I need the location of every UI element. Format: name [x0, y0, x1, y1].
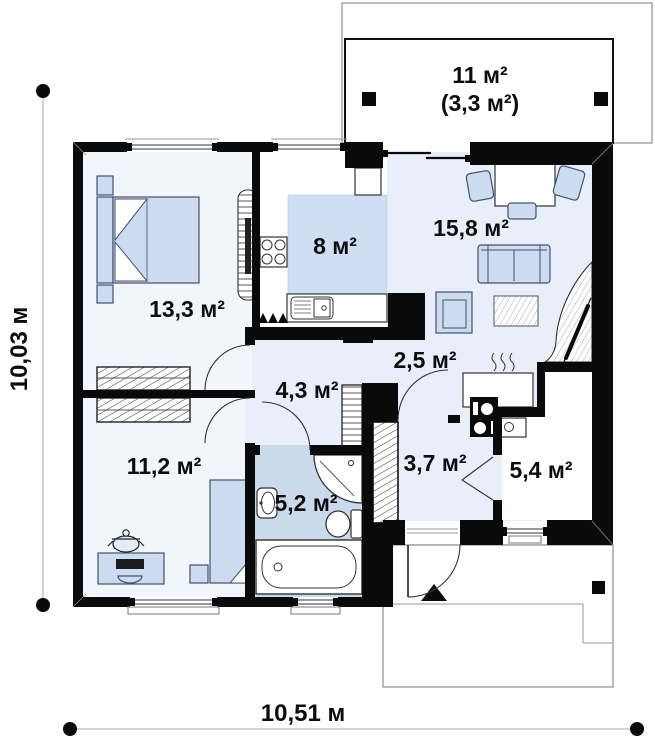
room-label-hall: 2,5 м²: [393, 347, 456, 373]
wall: [73, 142, 83, 607]
room-label-boiler-room: 5,4 м²: [509, 457, 572, 483]
wall: [345, 152, 383, 168]
pot-knob: [123, 530, 129, 536]
wall: [345, 142, 383, 152]
room-label-bathroom: 5,2 м²: [274, 490, 337, 516]
window-cap: [212, 143, 217, 151]
vestibule-wardrobe: [373, 422, 398, 523]
dimension-label-width: 10,51 м: [261, 700, 345, 727]
wardrobe: [97, 367, 190, 390]
room-label-vestibule: 3,7 м²: [403, 450, 466, 476]
wall: [245, 443, 255, 597]
room-label-corridor: 4,3 м²: [275, 377, 338, 403]
wall: [217, 142, 273, 152]
floor-plan-drawing: 10,03 м 10,51 м 11 м² (3,3 м²) 13,3 м² 8…: [0, 0, 655, 743]
toilet-tank: [351, 510, 362, 538]
nightstand: [97, 285, 113, 303]
terrace-post-right: [594, 92, 608, 106]
window-cap: [503, 527, 507, 536]
rug: [494, 296, 538, 326]
radiator-core: [245, 218, 251, 274]
dimension-dot: [36, 84, 50, 98]
monitor: [116, 559, 144, 569]
wall: [592, 152, 613, 545]
window-cap: [543, 527, 547, 536]
wall-block: [373, 383, 398, 422]
wall-bathroom-right: [362, 383, 373, 597]
boiler-slot: [473, 402, 478, 415]
dimension-dot: [630, 722, 644, 736]
porch-post: [592, 581, 605, 594]
dimension-dot: [63, 722, 77, 736]
window-cap: [383, 150, 388, 157]
wall-stub: [448, 415, 460, 423]
dining-chair: [508, 203, 536, 219]
wall: [373, 523, 393, 607]
vent-symbol: [258, 313, 288, 323]
porch: [383, 545, 613, 687]
nightstand: [97, 176, 113, 195]
room-label-living-room: 15,8 м²: [433, 215, 509, 241]
window-sill: [509, 536, 541, 543]
bed-headboard: [97, 197, 113, 283]
dimension-label-depth: 10,03 м: [6, 307, 33, 391]
window-cap: [273, 143, 278, 151]
window-cap: [333, 598, 338, 606]
wall: [217, 597, 293, 607]
floor-boiler-nook: [545, 372, 592, 417]
slider-opening: [383, 141, 470, 152]
fridge: [355, 168, 381, 195]
room-label-terrace: 11 м²: [452, 62, 508, 88]
window-sill: [291, 607, 340, 614]
porch-slab: [383, 545, 613, 687]
floor-plan-page: 10,03 м 10,51 м 11 м² (3,3 м²) 13,3 м² 8…: [0, 0, 655, 743]
wall-stub: [245, 445, 260, 455]
window-cap: [293, 598, 298, 606]
washbasin-bowl: [262, 492, 275, 514]
water-heater: [498, 418, 526, 437]
wall-stub: [245, 340, 255, 345]
wall-stub: [343, 330, 373, 343]
wall-vestibule-boiler: [493, 417, 502, 455]
wall-bathroom-top: [310, 445, 362, 455]
room-label-terrace-secondary: (3,3 м²): [441, 90, 519, 116]
nightstand: [190, 565, 208, 583]
wall: [470, 152, 613, 165]
wall: [470, 142, 613, 152]
window-cap: [340, 143, 345, 151]
wall: [460, 520, 503, 545]
wall-vestibule-boiler: [493, 500, 502, 520]
window-cap: [130, 598, 135, 606]
wall-bedroom-kitchen: [252, 152, 260, 327]
terrace-post-left: [362, 92, 376, 106]
wall-living-boiler: [545, 362, 592, 372]
dining-chair: [466, 170, 494, 202]
boiler-dial: [474, 422, 487, 435]
window-cap: [212, 598, 217, 606]
dining-table: [495, 163, 555, 206]
room-label-bedroom-second: 11,2 м²: [127, 453, 202, 479]
window-cap: [465, 155, 470, 162]
corridor-cabinet: [342, 385, 362, 447]
room-label-bedroom-main: 13,3 м²: [149, 296, 225, 322]
wall-living-boiler: [493, 407, 545, 417]
window-sill: [128, 607, 219, 614]
wall: [547, 520, 613, 545]
washbasin-faucet: [259, 501, 262, 504]
boiler-dial: [481, 403, 494, 416]
wall-bedroom-divider: [83, 390, 255, 398]
wall-kitchen-hall: [388, 293, 425, 340]
dimension-dot: [36, 598, 50, 612]
room-label-kitchen: 8 м²: [313, 233, 357, 259]
armchair: [436, 292, 472, 333]
window-cap: [127, 143, 132, 151]
